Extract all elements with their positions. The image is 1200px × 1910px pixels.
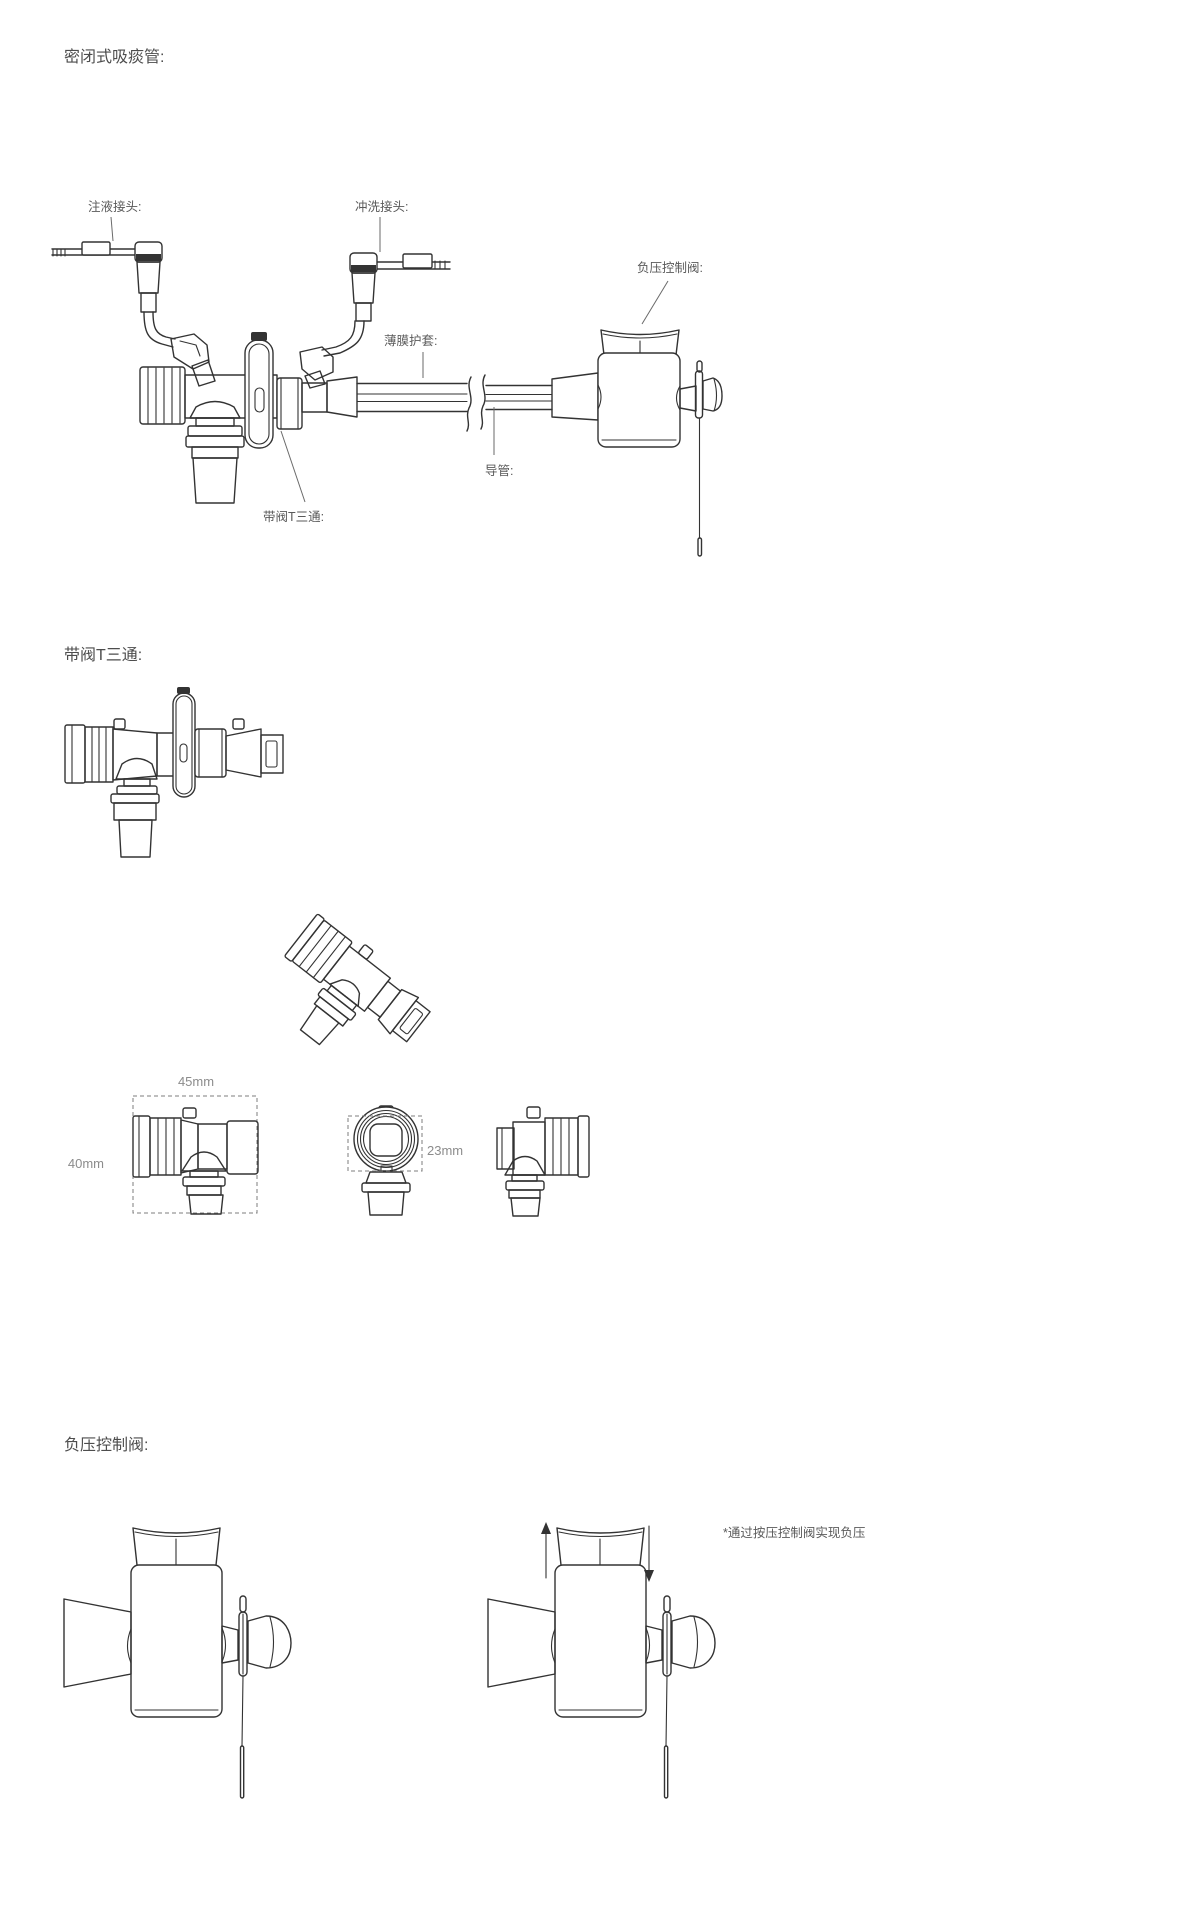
drawing-canvas: 密闭式吸痰管: 注液接头: 冲洗接头: 负压控制阀: 薄膜护套: 导管: 带阀T…	[0, 0, 1200, 1910]
membrane-sleeve-tube-drawing	[357, 373, 598, 431]
section-title-valved-tee: 带阀T三通:	[64, 646, 142, 664]
label-membrane-sleeve: 薄膜护套:	[384, 333, 437, 348]
sleeve-collar-drawing	[277, 377, 357, 429]
label-suction-valve: 负压控制阀:	[637, 261, 703, 275]
assembly-leader-lines	[111, 217, 668, 502]
injection-port-drawing	[52, 242, 215, 386]
label-catheter: 导管:	[485, 463, 513, 478]
flush-port-drawing	[300, 253, 450, 388]
pressure-valve-drawings	[64, 1522, 715, 1798]
valved-tee-angled-view-drawing	[255, 910, 438, 1086]
valve-disc-drawing	[245, 332, 273, 448]
label-injection-port: 注液接头:	[88, 199, 141, 214]
section-title-pressure-valve: 负压控制阀:	[64, 1436, 148, 1454]
valved-tee-end-view-drawing	[354, 1106, 418, 1215]
label-flush-port: 冲洗接头:	[355, 199, 408, 214]
technical-drawing-page: 密闭式吸痰管: 注液接头: 冲洗接头: 负压控制阀: 薄膜护套: 导管: 带阀T…	[0, 0, 1200, 1910]
valved-tee-front-view-drawing	[133, 1108, 258, 1214]
dimension-height: 40mm	[68, 1156, 104, 1171]
pressure-valve-drawing	[64, 1528, 291, 1798]
closed-suction-catheter-assembly-drawing	[52, 242, 722, 556]
label-valved-tee: 带阀T三通:	[263, 510, 324, 524]
pressure-valve-drawing-pressed	[488, 1528, 715, 1798]
dimension-width: 45mm	[178, 1074, 214, 1089]
section-title-catheter: 密闭式吸痰管:	[64, 48, 164, 66]
valved-tee-rear-view-drawing	[497, 1107, 589, 1216]
valved-tee-side-view-drawing	[65, 687, 283, 857]
suction-control-valve-drawing	[598, 330, 722, 556]
dimension-diameter: 23mm	[427, 1143, 463, 1158]
press-note: *通过按压控制阀实现负压	[723, 1525, 865, 1540]
